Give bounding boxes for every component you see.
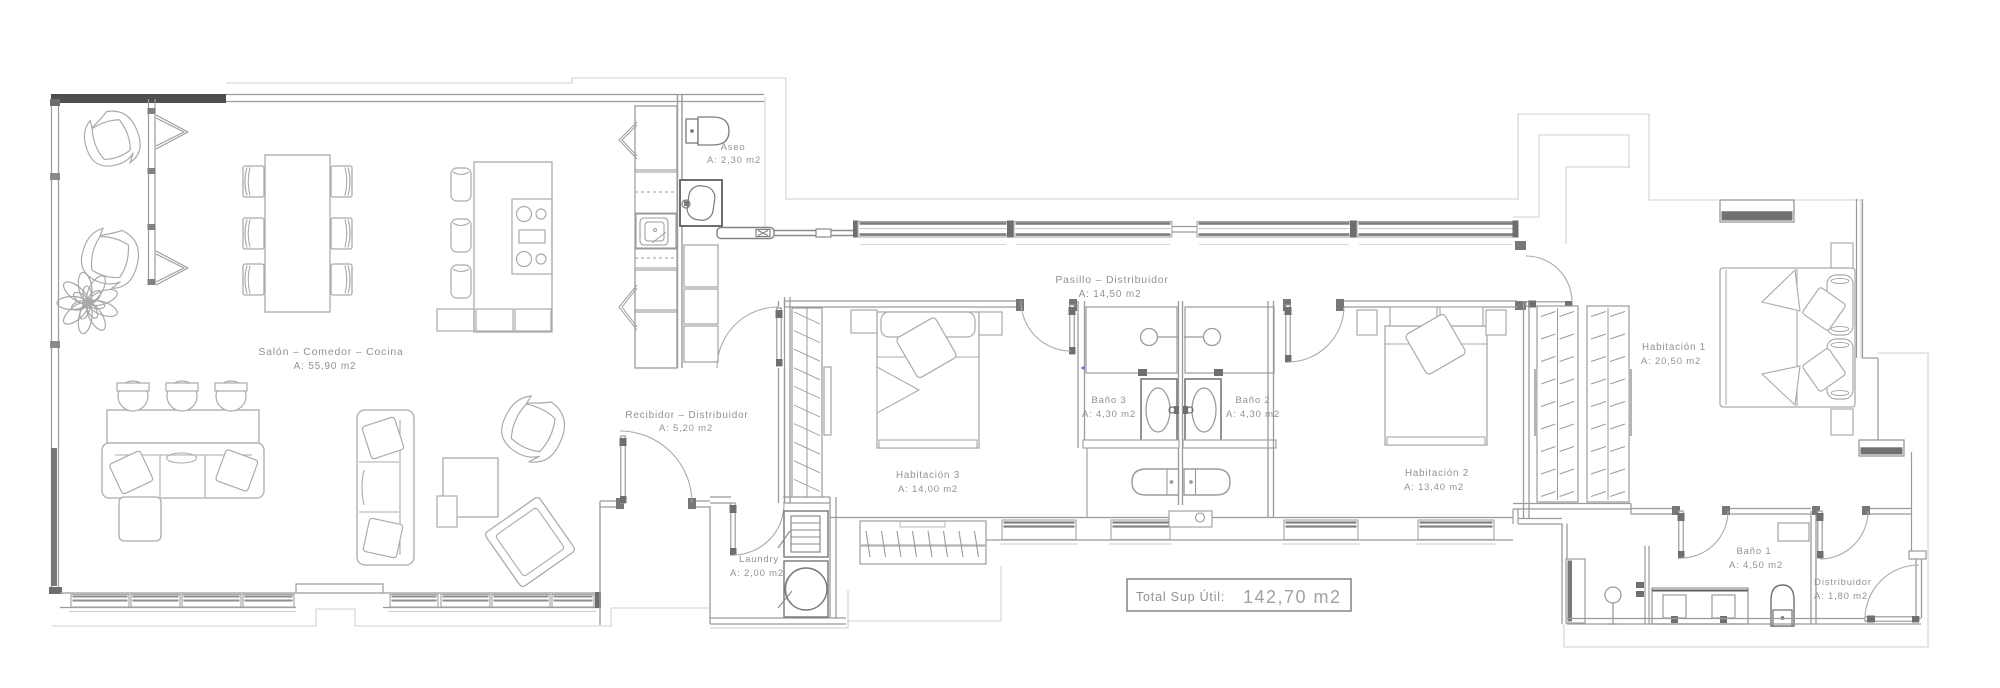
svg-text:A: 2,30 m2: A: 2,30 m2 (707, 155, 761, 166)
svg-text:Habitación 1: Habitación 1 (1642, 342, 1706, 353)
svg-text:Pasillo – Distribuidor: Pasillo – Distribuidor (1055, 274, 1168, 286)
svg-text:A: 14,50 m2: A: 14,50 m2 (1079, 289, 1142, 300)
svg-text:Baño 1: Baño 1 (1737, 546, 1772, 557)
svg-text:Habitación 2: Habitación 2 (1405, 468, 1469, 479)
svg-text:A: 1,80 m2: A: 1,80 m2 (1814, 591, 1868, 602)
svg-text:A: 20,50 m2: A: 20,50 m2 (1641, 356, 1701, 367)
svg-text:Salón – Comedor – Cocina: Salón – Comedor – Cocina (258, 346, 403, 358)
svg-text:A: 4,30 m2: A: 4,30 m2 (1082, 409, 1136, 420)
svg-text:A: 13,40 m2: A: 13,40 m2 (1404, 482, 1464, 493)
svg-text:Baño 3: Baño 3 (1092, 395, 1127, 406)
svg-text:Habitación 3: Habitación 3 (896, 470, 960, 481)
svg-text:A: 14,00 m2: A: 14,00 m2 (898, 484, 958, 495)
svg-text:142,70 m2: 142,70 m2 (1243, 587, 1342, 607)
svg-text:A: 4,30 m2: A: 4,30 m2 (1226, 409, 1280, 420)
svg-text:A: 5,20 m2: A: 5,20 m2 (659, 423, 713, 434)
svg-text:A: 55,90 m2: A: 55,90 m2 (294, 361, 357, 372)
svg-text:Baño 2: Baño 2 (1236, 395, 1271, 406)
svg-text:Laundry: Laundry (739, 554, 779, 565)
svg-text:Recibidor – Distribuidor: Recibidor – Distribuidor (625, 410, 748, 421)
svg-text:Distribuidor: Distribuidor (1814, 577, 1872, 588)
svg-text:Total Sup Útil:: Total Sup Útil: (1136, 589, 1225, 604)
svg-text:A: 4,50 m2: A: 4,50 m2 (1729, 560, 1783, 571)
svg-text:Aseo: Aseo (721, 142, 746, 153)
svg-text:A: 2,00 m2: A: 2,00 m2 (730, 568, 784, 579)
